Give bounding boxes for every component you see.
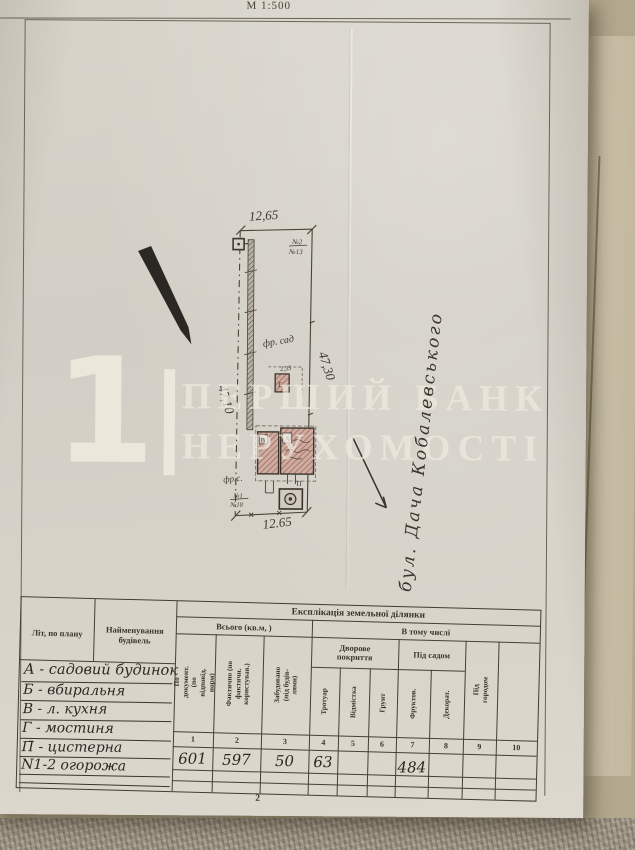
value-cell-8 bbox=[428, 753, 462, 776]
value-cell-1: 601 bbox=[172, 747, 212, 770]
porch-dim-label: 2,35 bbox=[280, 365, 293, 373]
svg-text:№2: №2 bbox=[291, 238, 303, 246]
value-cell-3: 50 bbox=[260, 749, 308, 772]
value-cell-2: 597 bbox=[212, 748, 260, 771]
rot-col-9: Під городом bbox=[463, 641, 499, 740]
dim-bottom-label: 12.65 bbox=[262, 513, 293, 531]
svg-text:№13: №13 bbox=[288, 248, 303, 256]
value-cell-10 bbox=[495, 755, 536, 778]
value-cell-4: 63 bbox=[308, 750, 337, 773]
plot-number-top: №2 №13 bbox=[288, 238, 307, 256]
rot-col-10 bbox=[496, 642, 540, 741]
cistern-label: П bbox=[296, 480, 301, 488]
entry-underline bbox=[19, 774, 170, 778]
rot-col-7: Фруктов. bbox=[396, 669, 431, 738]
gate-dot bbox=[237, 243, 240, 246]
num-cell-1: 1 bbox=[173, 731, 213, 747]
entry-underline bbox=[19, 782, 170, 787]
photo-background: М 1:500 bbox=[0, 0, 635, 850]
exploitation-table: Експлікація земельної ділянки Літ, по пл… bbox=[16, 596, 542, 802]
num-cell-8: 8 bbox=[429, 738, 463, 754]
value-cell-5 bbox=[337, 751, 367, 774]
num-cell-3: 3 bbox=[261, 733, 309, 749]
scale-caption: М 1:500 bbox=[209, 0, 329, 12]
svg-text:№18: №18 bbox=[229, 502, 243, 509]
group-header-garden: Під садом bbox=[398, 639, 466, 671]
document-paper: М 1:500 bbox=[0, 0, 589, 818]
rot-col-1: По документ. (по відповід. норм) bbox=[173, 633, 216, 732]
num-cell-2: 2 bbox=[213, 732, 261, 748]
entry-row-p: П̄ - цистерна bbox=[22, 739, 123, 756]
watermark-divider-bar bbox=[164, 369, 176, 475]
entry-row-a: А - садовий будинок bbox=[24, 662, 178, 679]
col-header-lit: Літ, по плану bbox=[20, 605, 94, 661]
col-header-name: Найменування будівель bbox=[93, 607, 176, 663]
dim-top-label: 12,65 bbox=[249, 207, 280, 224]
entry-row-b: Б - вбиральня bbox=[23, 682, 125, 700]
carpet-floor bbox=[0, 818, 635, 850]
entry-row-n1: N1-2 огорожа bbox=[21, 757, 126, 775]
num-cell-10: 10 bbox=[496, 740, 537, 756]
page-number: 2 bbox=[255, 794, 260, 804]
plot-boundary bbox=[231, 225, 316, 522]
rot-col-5: Відмістка bbox=[338, 668, 370, 737]
rot-col-3: Забудовано (під будів-лями) bbox=[261, 636, 312, 735]
garden-label: фр. сад bbox=[262, 334, 295, 350]
watermark-line2: НЕРУХОМОСТІ bbox=[182, 425, 545, 471]
value-cell-6 bbox=[367, 752, 395, 775]
watermark-line1: ПЕРШИЙ БАНК bbox=[182, 375, 549, 421]
plot-number-bottom: №1 №18 bbox=[229, 493, 248, 509]
rot-col-6: Грунт bbox=[368, 668, 398, 737]
num-cell-6: 6 bbox=[368, 736, 396, 752]
site-plan-drawing: Б 2,35 В А П bbox=[119, 194, 441, 541]
rot-col-2: Фактично (по фактичн. користував.) bbox=[213, 634, 264, 733]
group-header-yard: Дворове покриття bbox=[311, 637, 399, 669]
watermark-digit: 1 bbox=[53, 338, 156, 485]
entry-row-g: Г - мостиня bbox=[22, 720, 114, 737]
value-cell-9 bbox=[462, 754, 495, 777]
cistern-dot bbox=[289, 497, 292, 500]
num-cell-9: 9 bbox=[463, 739, 496, 755]
entry-row-v: В - л. кухня bbox=[23, 701, 108, 717]
rot-col-8: Декорат. bbox=[429, 670, 465, 739]
num-cell-7: 7 bbox=[396, 737, 429, 753]
rot-col-4: Тротуар bbox=[309, 667, 340, 736]
garden-label-short: фр.с. bbox=[223, 473, 243, 485]
table-grid-line bbox=[172, 780, 536, 791]
value-cell-7: 484 bbox=[395, 755, 428, 778]
num-cell-5: 5 bbox=[338, 735, 368, 751]
num-cell-4: 4 bbox=[309, 735, 338, 751]
